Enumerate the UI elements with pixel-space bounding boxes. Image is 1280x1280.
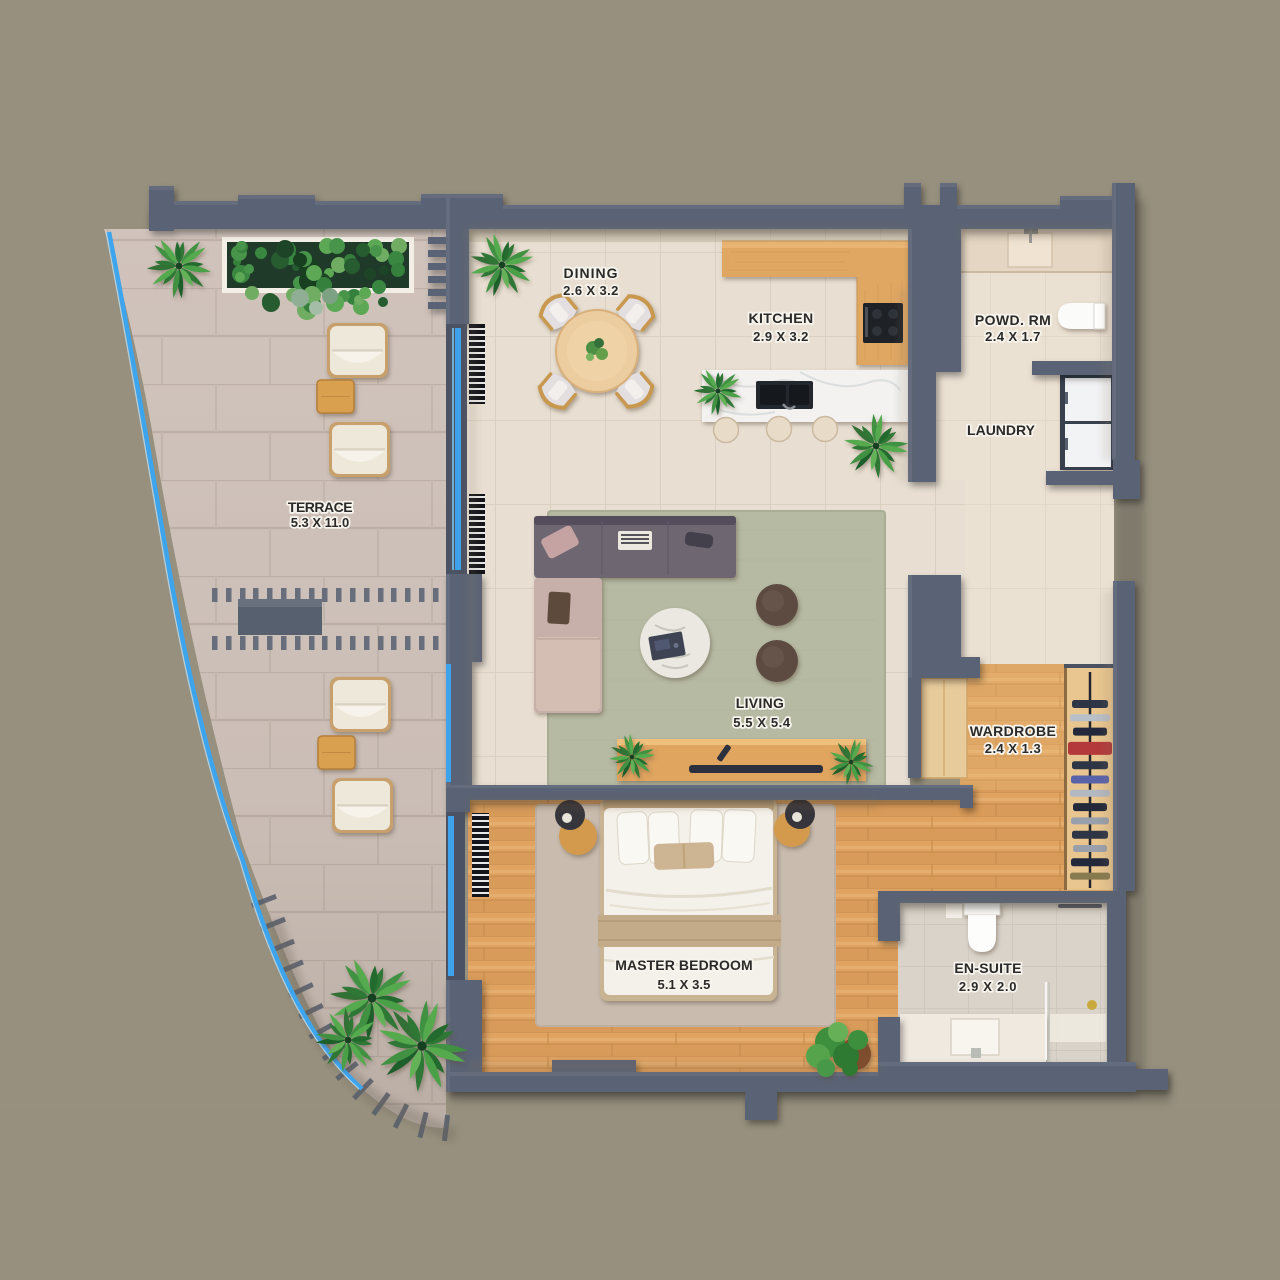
svg-text:2.4 X 1.3: 2.4 X 1.3: [985, 741, 1042, 756]
svg-text:2.9 X 3.2: 2.9 X 3.2: [753, 329, 809, 344]
svg-text:LIVING: LIVING: [736, 695, 784, 711]
svg-text:KITCHEN: KITCHEN: [748, 310, 813, 326]
svg-text:5.3 X 11.0: 5.3 X 11.0: [291, 515, 350, 530]
svg-text:DINING: DINING: [564, 265, 619, 281]
svg-text:5.5 X 5.4: 5.5 X 5.4: [733, 715, 791, 730]
svg-text:POWD. RM: POWD. RM: [975, 312, 1051, 328]
svg-text:LAUNDRY: LAUNDRY: [967, 422, 1036, 438]
svg-text:5.1 X 3.5: 5.1 X 3.5: [658, 977, 711, 992]
svg-text:TERRACE: TERRACE: [288, 499, 352, 515]
svg-text:2.4 X 1.7: 2.4 X 1.7: [985, 329, 1041, 344]
svg-text:2.9 X 2.0: 2.9 X 2.0: [959, 979, 1017, 994]
svg-text:WARDROBE: WARDROBE: [970, 723, 1056, 739]
svg-text:MASTER BEDROOM: MASTER BEDROOM: [615, 957, 753, 973]
svg-text:2.6 X 3.2: 2.6 X 3.2: [563, 283, 619, 298]
svg-text:EN-SUITE: EN-SUITE: [954, 960, 1021, 976]
